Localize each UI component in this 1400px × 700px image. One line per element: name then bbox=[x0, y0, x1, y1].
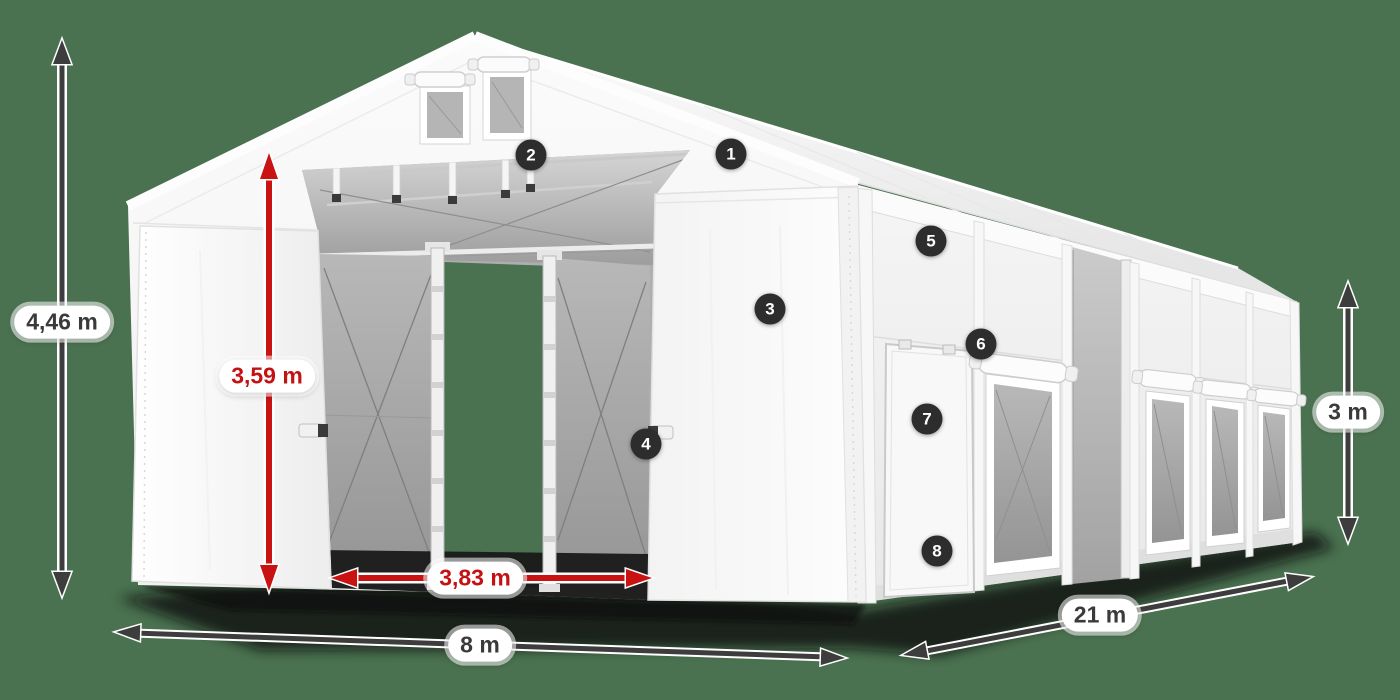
callout-marker-8[interactable]: 8 bbox=[922, 536, 953, 567]
callout-marker-2[interactable]: 2 bbox=[516, 140, 547, 171]
callout-marker-4[interactable]: 4 bbox=[631, 429, 662, 460]
dimension-label-side-wall-height: 3 m bbox=[1316, 396, 1380, 429]
side-wall-open-gap bbox=[1072, 247, 1131, 584]
dimension-label-entrance-width: 3,83 m bbox=[427, 562, 523, 595]
dimension-label-total-height: 4,46 m bbox=[14, 306, 110, 339]
callout-marker-7[interactable]: 7 bbox=[912, 404, 943, 435]
callout-marker-6[interactable]: 6 bbox=[966, 329, 997, 360]
tent-illustration bbox=[0, 0, 1400, 700]
dimension-label-front-width: 8 m bbox=[448, 629, 512, 662]
callout-marker-1[interactable]: 1 bbox=[716, 139, 747, 170]
front-right-door bbox=[648, 186, 866, 602]
entrance-opening bbox=[298, 145, 698, 605]
callout-marker-3[interactable]: 3 bbox=[755, 294, 786, 325]
callout-marker-5[interactable]: 5 bbox=[916, 226, 947, 257]
dimension-label-side-length: 21 m bbox=[1062, 599, 1138, 632]
front-left-door bbox=[132, 223, 331, 589]
dimension-label-entrance-height: 3,59 m bbox=[219, 360, 315, 393]
tent-diagram: 4,46 m 3,59 m 3,83 m 8 m 21 m 3 m 1 2 3 … bbox=[0, 0, 1400, 700]
